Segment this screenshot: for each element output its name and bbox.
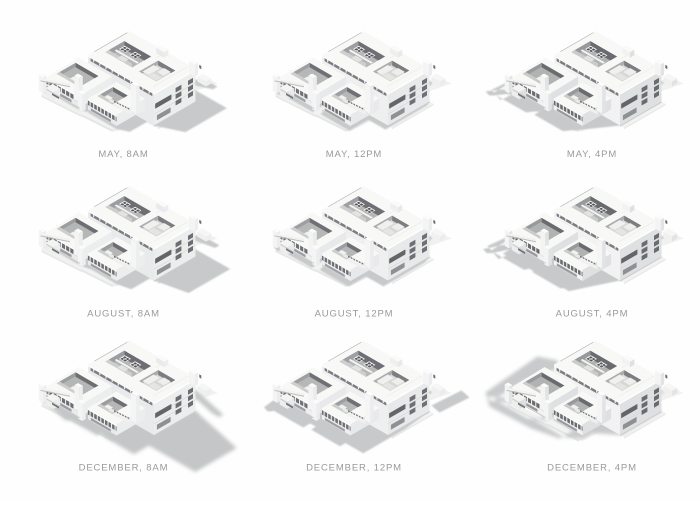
svg-text:DECEMBER, 8AM: DECEMBER, 8AM xyxy=(79,463,169,474)
svg-text:MAY, 8AM: MAY, 8AM xyxy=(98,149,148,160)
svg-text:AUGUST, 8AM: AUGUST, 8AM xyxy=(87,309,160,320)
svg-text:DECEMBER, 12PM: DECEMBER, 12PM xyxy=(306,463,402,474)
svg-text:DECEMBER, 4PM: DECEMBER, 4PM xyxy=(547,463,637,474)
svg-text:AUGUST, 4PM: AUGUST, 4PM xyxy=(556,309,629,320)
svg-text:AUGUST, 12PM: AUGUST, 12PM xyxy=(315,309,394,320)
svg-text:MAY, 12PM: MAY, 12PM xyxy=(326,149,382,160)
svg-text:MAY, 4PM: MAY, 4PM xyxy=(567,149,617,160)
